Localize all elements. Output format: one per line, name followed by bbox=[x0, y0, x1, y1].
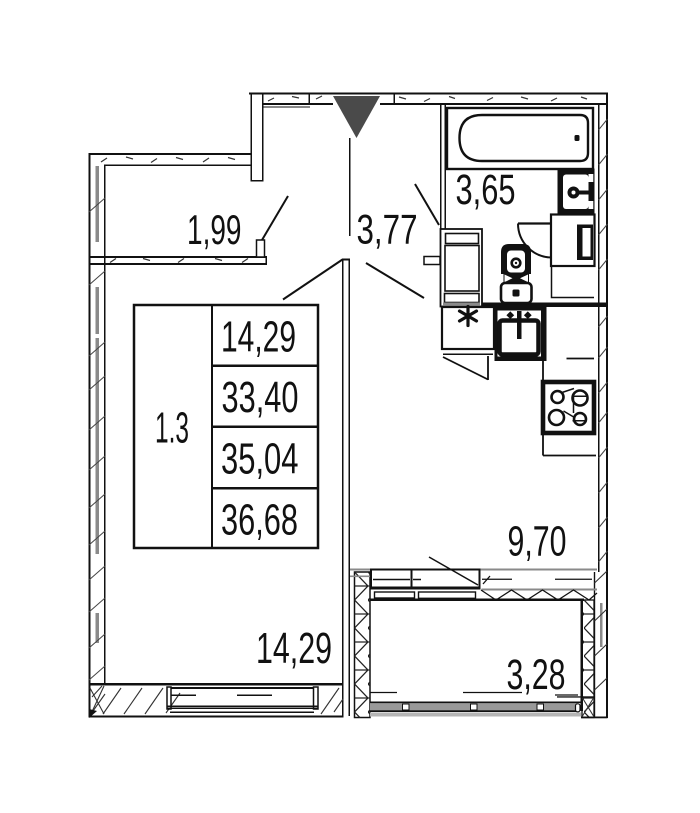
svg-text:14,29: 14,29 bbox=[221, 313, 296, 362]
svg-text:3,28: 3,28 bbox=[507, 651, 566, 699]
svg-text:3,77: 3,77 bbox=[357, 206, 418, 253]
svg-text:35,04: 35,04 bbox=[221, 435, 299, 484]
svg-text:33,40: 33,40 bbox=[222, 373, 299, 422]
svg-text:1,99: 1,99 bbox=[187, 206, 242, 253]
svg-text:36,68: 36,68 bbox=[221, 496, 298, 545]
svg-text:9,70: 9,70 bbox=[508, 518, 567, 566]
svg-text:1.3: 1.3 bbox=[155, 404, 189, 453]
svg-text:3,65: 3,65 bbox=[456, 166, 516, 214]
svg-text:14,29: 14,29 bbox=[256, 624, 332, 673]
